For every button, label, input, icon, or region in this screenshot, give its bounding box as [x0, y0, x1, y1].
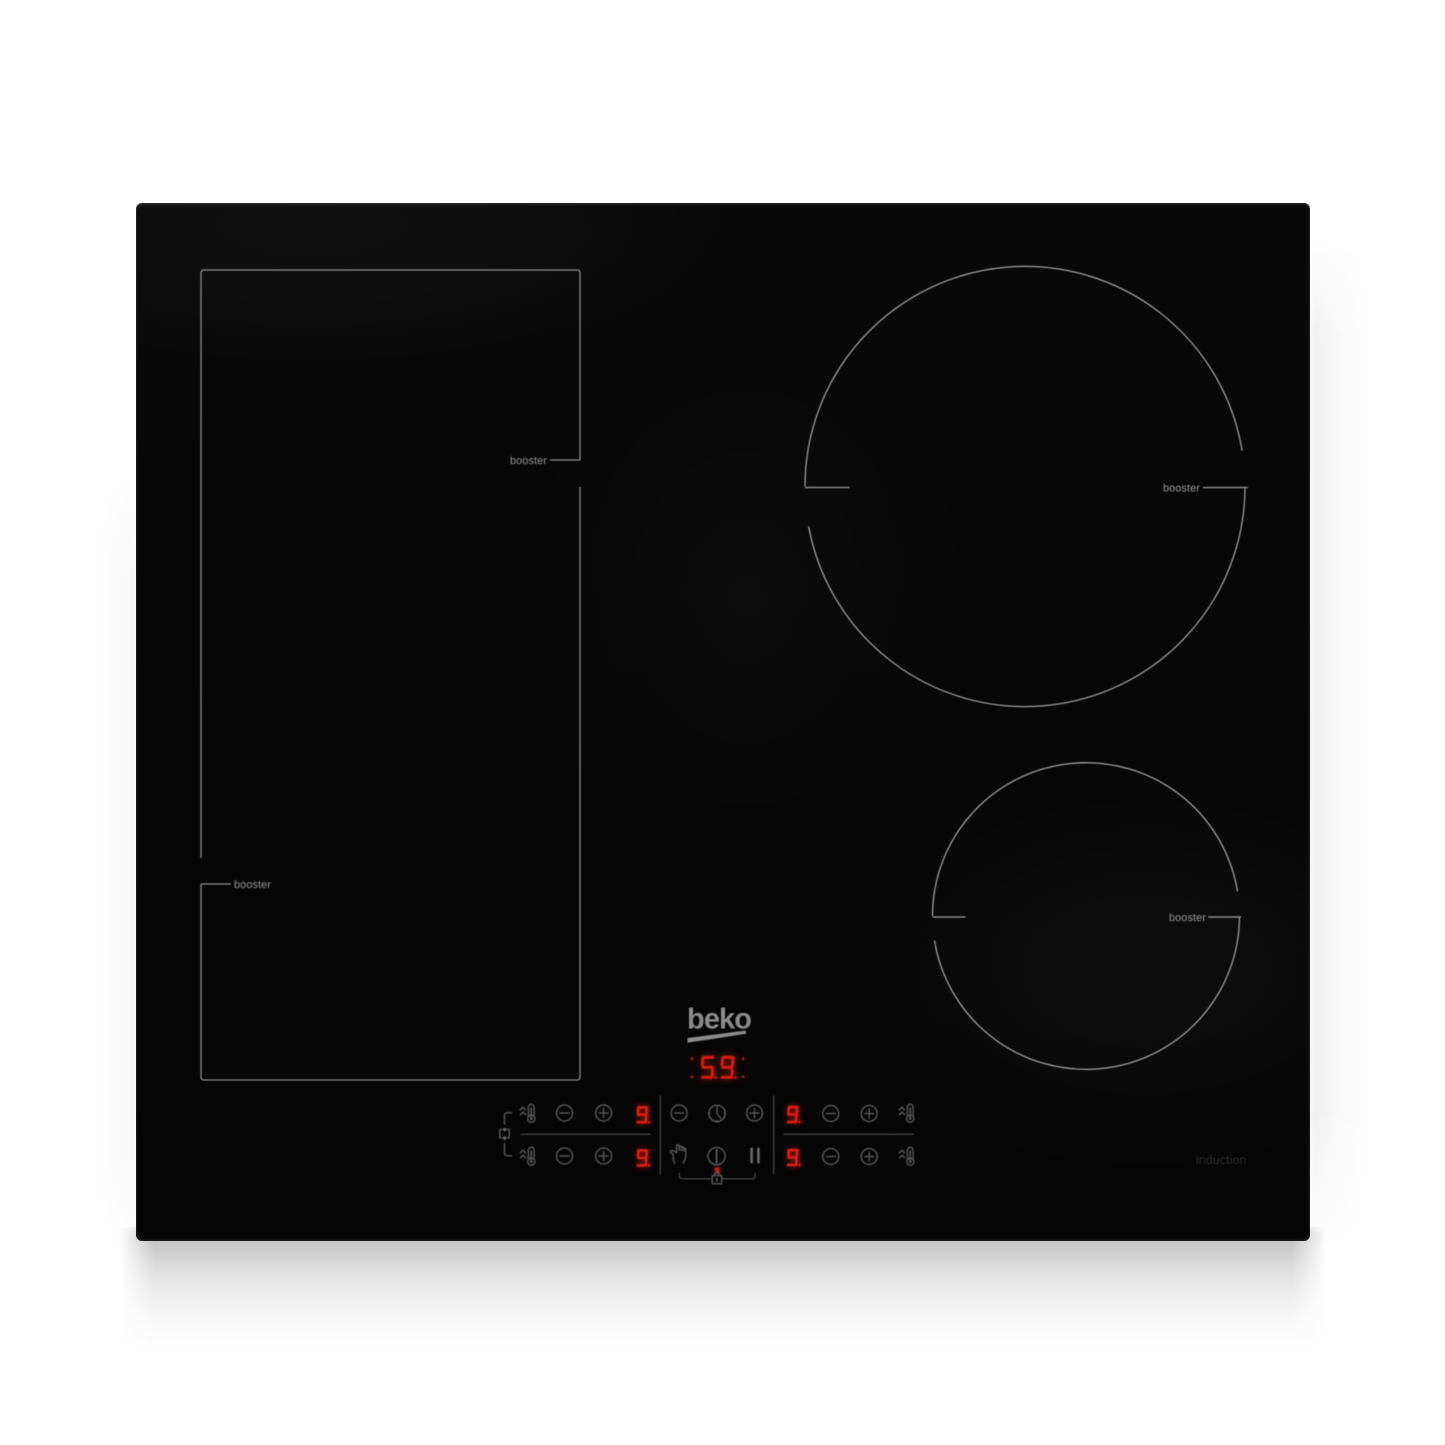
svg-text:induction: induction	[1196, 1153, 1246, 1167]
svg-text:booster: booster	[510, 455, 547, 467]
svg-text:booster: booster	[1163, 483, 1200, 495]
svg-text:booster: booster	[1169, 912, 1206, 924]
svg-text:booster: booster	[234, 879, 271, 891]
svg-text:beko: beko	[687, 1004, 751, 1036]
